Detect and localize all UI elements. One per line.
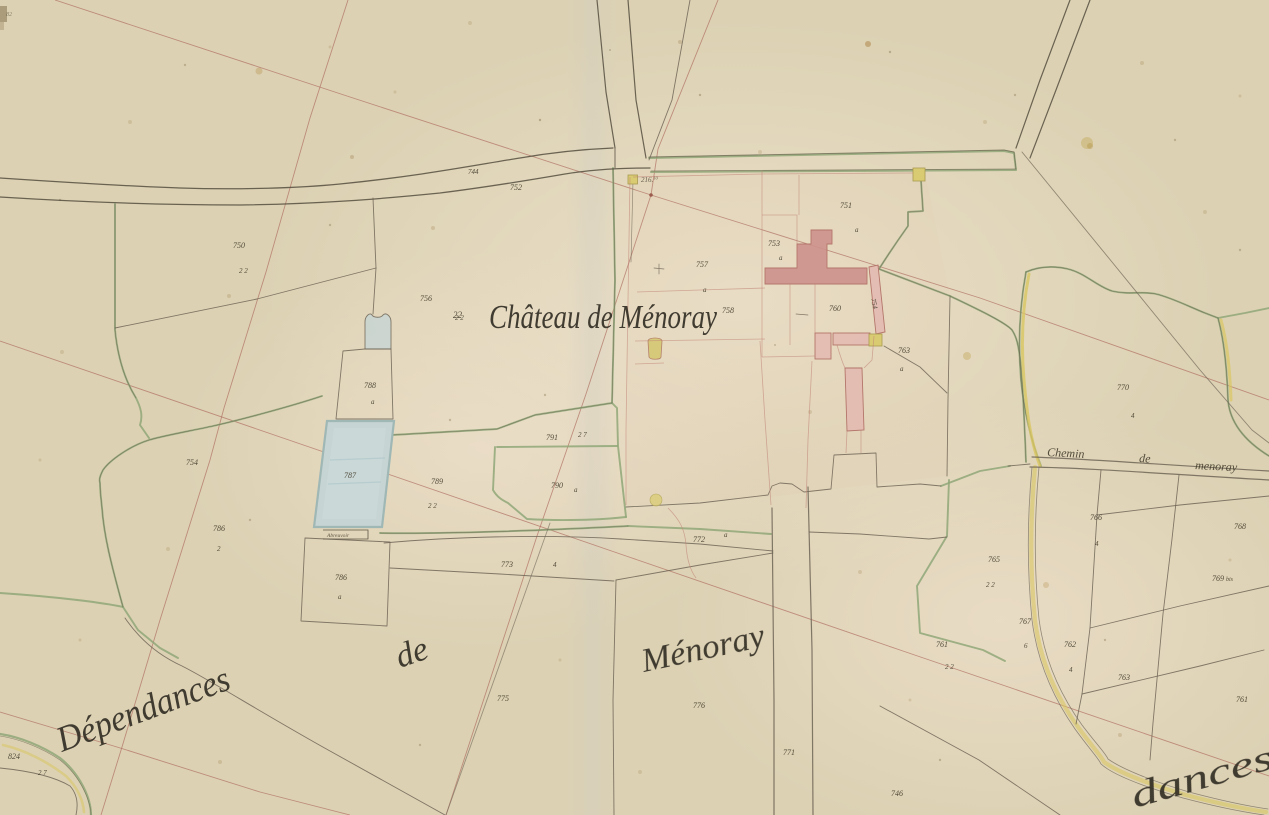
- svg-text:791: 791: [546, 433, 558, 442]
- svg-text:2 2: 2 2: [945, 663, 954, 671]
- svg-text:a: a: [574, 486, 578, 494]
- svg-text:761: 761: [936, 640, 948, 649]
- svg-text:824: 824: [8, 752, 20, 761]
- svg-text:765: 765: [988, 555, 1000, 564]
- svg-text:2 2: 2 2: [455, 314, 464, 322]
- svg-text:a: a: [900, 365, 904, 373]
- svg-text:773: 773: [501, 560, 513, 569]
- svg-text:768: 768: [1234, 522, 1246, 531]
- svg-text:2 2: 2 2: [428, 502, 437, 510]
- svg-text:789: 789: [431, 477, 443, 486]
- svg-text:754: 754: [186, 458, 198, 467]
- svg-text:746: 746: [891, 789, 903, 798]
- svg-text:761: 761: [1236, 695, 1248, 704]
- svg-text:a: a: [779, 254, 783, 262]
- svg-text:2 2: 2 2: [986, 581, 995, 589]
- svg-text:a: a: [724, 531, 728, 539]
- svg-text:a: a: [338, 593, 342, 601]
- svg-text:4: 4: [1095, 540, 1099, 548]
- svg-text:751: 751: [840, 201, 852, 210]
- svg-text:2: 2: [217, 545, 221, 553]
- svg-text:4: 4: [1131, 412, 1135, 420]
- svg-text:786: 786: [335, 573, 347, 582]
- svg-text:760: 760: [829, 304, 841, 313]
- svg-text:772: 772: [693, 535, 705, 544]
- svg-text:6: 6: [1024, 642, 1028, 650]
- svg-text:de: de: [1139, 451, 1152, 466]
- svg-text:787: 787: [344, 471, 357, 480]
- svg-text:2 7: 2 7: [578, 431, 587, 439]
- svg-text:758: 758: [722, 306, 734, 315]
- svg-text:763: 763: [898, 346, 910, 355]
- svg-text:753: 753: [768, 239, 780, 248]
- svg-text:a: a: [371, 398, 375, 406]
- svg-text:Abreuvoir: Abreuvoir: [326, 533, 350, 539]
- svg-text:a: a: [703, 286, 707, 294]
- svg-text:4: 4: [1069, 666, 1073, 674]
- svg-text:756: 756: [420, 294, 432, 303]
- svg-text:770: 770: [1117, 383, 1129, 392]
- svg-text:771: 771: [783, 748, 795, 757]
- svg-text:2 2: 2 2: [239, 267, 248, 275]
- svg-text:750: 750: [233, 241, 245, 250]
- svg-text:752: 752: [510, 183, 522, 192]
- svg-text:767: 767: [1019, 617, 1032, 626]
- svg-text:82: 82: [6, 12, 12, 18]
- svg-text:776: 776: [693, 701, 705, 710]
- svg-text:a: a: [855, 226, 859, 234]
- svg-text:744: 744: [468, 168, 479, 176]
- svg-text:757: 757: [696, 260, 709, 269]
- svg-text:Chemin: Chemin: [1047, 445, 1085, 461]
- svg-text:menoray: menoray: [1195, 458, 1238, 474]
- svg-text:790: 790: [551, 481, 563, 490]
- svg-text:775: 775: [497, 694, 509, 703]
- svg-text:786: 786: [213, 524, 225, 533]
- svg-text:766: 766: [1090, 513, 1102, 522]
- svg-text:788: 788: [364, 381, 376, 390]
- svg-text:4: 4: [553, 561, 557, 569]
- svg-text:762: 762: [1064, 640, 1076, 649]
- svg-text:Château de Ménoray: Château de Ménoray: [489, 299, 718, 336]
- svg-text:2 7: 2 7: [38, 769, 47, 777]
- svg-text:763: 763: [1118, 673, 1130, 682]
